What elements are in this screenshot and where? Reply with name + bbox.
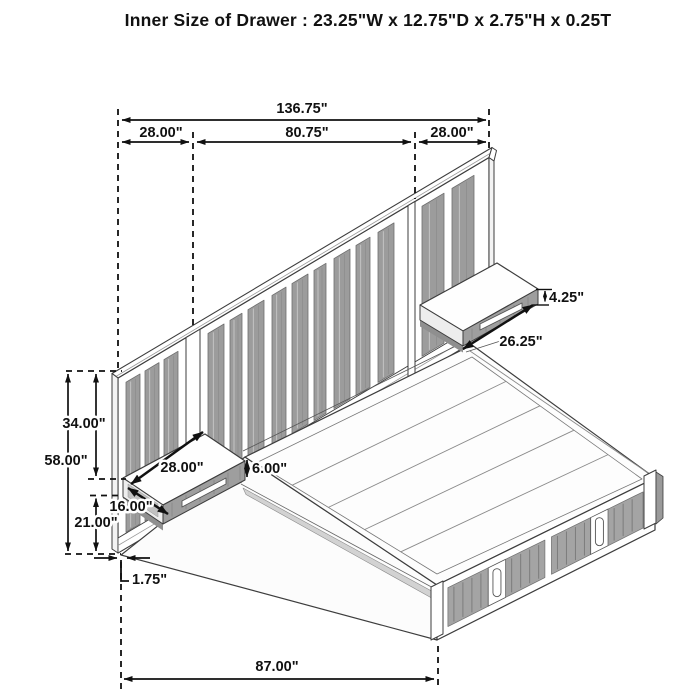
headboard-mullion-right (408, 201, 415, 380)
headboard-slat (248, 300, 264, 460)
headboard-slat (378, 223, 394, 383)
line-art-canvas: Inner Size of Drawer : 23.25"W x 12.75"D… (0, 0, 700, 700)
dim-label-left-nightstand-height: 6.00" (252, 461, 287, 477)
headboard-slat (230, 313, 242, 470)
dim-label-left-nightstand-width: 28.00" (160, 460, 203, 476)
dim-label-bed-length: 87.00" (255, 659, 298, 675)
dim-label-base-thickness: 1.75" (132, 572, 167, 588)
diagram-title: Inner Size of Drawer : 23.25"W x 12.75"D… (125, 10, 612, 30)
headboard-slat (314, 263, 326, 420)
dim-label-left-wing-width: 28.00" (139, 125, 182, 141)
right-side-sliver (656, 472, 663, 524)
bed-dimension-diagram: Inner Size of Drawer : 23.25"W x 12.75"D… (0, 0, 700, 700)
dim-label-upper-height: 34.00" (62, 416, 105, 432)
headboard-slat (356, 237, 370, 395)
dim-label-right-nightstand-height: 4.25" (549, 290, 584, 306)
dim-label-center-width: 80.75" (285, 125, 328, 141)
dim-label-left-nightstand-depth: 16.00" (109, 499, 152, 515)
corner-post-right (644, 470, 656, 529)
dim-label-right-wing-width: 28.00" (430, 125, 473, 141)
dim-label-lower-height: 21.00" (74, 515, 117, 531)
corner-post-left (431, 581, 443, 640)
headboard-slat (272, 287, 286, 445)
headboard-slat (334, 249, 350, 409)
headboard-slat (292, 274, 308, 434)
dim-label-overall-width: 136.75" (276, 101, 327, 117)
dim-label-right-nightstand-width: 26.25" (499, 334, 542, 350)
drawer-handle-slot (595, 518, 603, 546)
dim-label-total-height: 58.00" (44, 453, 87, 469)
drawer-handle-slot (493, 569, 501, 597)
drawing-geometry (65, 109, 663, 689)
leader-elbow (121, 560, 129, 581)
